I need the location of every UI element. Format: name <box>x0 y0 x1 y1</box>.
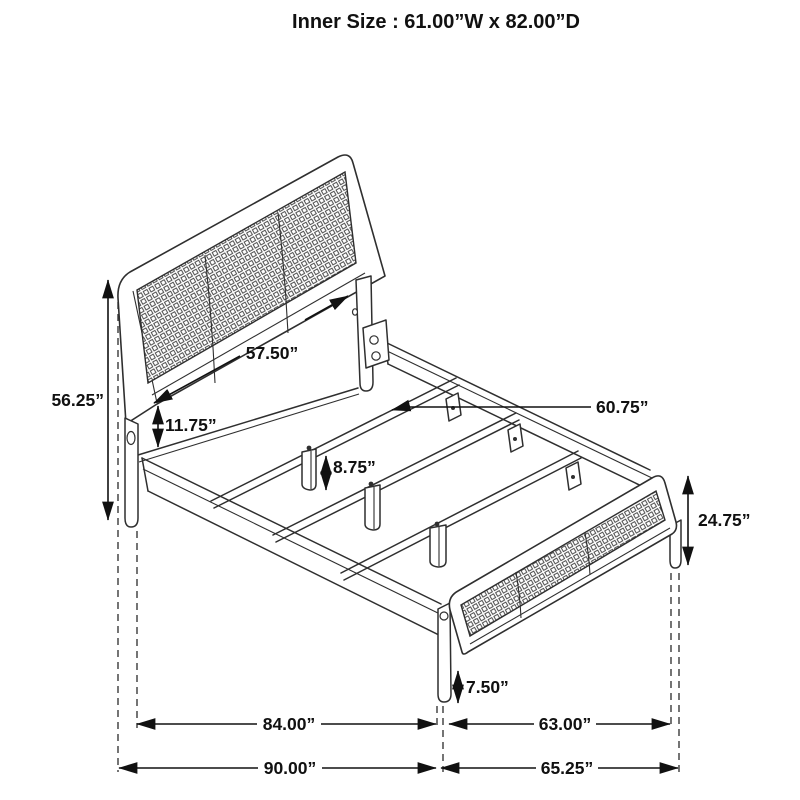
dim-label-headboard-to-rail-gap: 11.75” <box>165 415 217 435</box>
slat1-support-leg <box>302 449 316 490</box>
bracket-hole-top <box>370 336 378 344</box>
dim-label-overall-width: 65.25” <box>541 758 594 778</box>
dim-leader-slat-length <box>392 407 591 410</box>
bracket-hole-bottom <box>372 352 380 360</box>
left-rail-bottom-edge <box>148 491 447 639</box>
bed-diagram-svg: Inner Size : 61.00”W x 82.00”D <box>0 0 800 800</box>
slat1-top-edge <box>211 378 456 501</box>
dim-label-rail-length: 84.00” <box>263 714 316 734</box>
slat2-screw <box>369 482 374 487</box>
dim-label-inner-span: 63.00” <box>539 714 592 734</box>
dim-label-headboard-height: 56.25” <box>51 390 104 410</box>
slat2-bracket-bolt <box>513 437 517 441</box>
dim-label-overall-depth: 90.00” <box>264 758 317 778</box>
dim-label-center-leg-height: 8.75” <box>333 457 376 477</box>
slat2-support-leg <box>365 485 380 530</box>
dim-label-footboard-height: 24.75” <box>698 510 751 530</box>
right-side-rail <box>385 342 654 492</box>
diagram-title: Inner Size : 61.00”W x 82.00”D <box>292 11 580 33</box>
footboard-mesh <box>461 491 665 636</box>
footboard <box>438 476 681 702</box>
slat3-bracket-bolt <box>571 475 575 479</box>
left-rail-top-edge <box>142 458 441 604</box>
left-side-rail <box>142 458 447 639</box>
headboard-right-leg-hole <box>353 309 358 315</box>
dim-label-headboard-width: 57.50” <box>246 343 299 363</box>
bed-dimension-diagram: Inner Size : 61.00”W x 82.00”D <box>0 0 800 800</box>
left-rail-end-cap <box>142 458 148 491</box>
slat3-support-leg <box>430 525 446 567</box>
footboard-leg-bolt <box>440 612 448 620</box>
left-rail-ledge-line <box>143 469 442 615</box>
slat1-bottom-edge <box>214 385 459 508</box>
headboard-left-leg-cap <box>127 432 135 445</box>
dim-label-slat-length: 60.75” <box>596 397 649 417</box>
dim-label-footboard-leg-height: 7.50” <box>466 677 509 697</box>
